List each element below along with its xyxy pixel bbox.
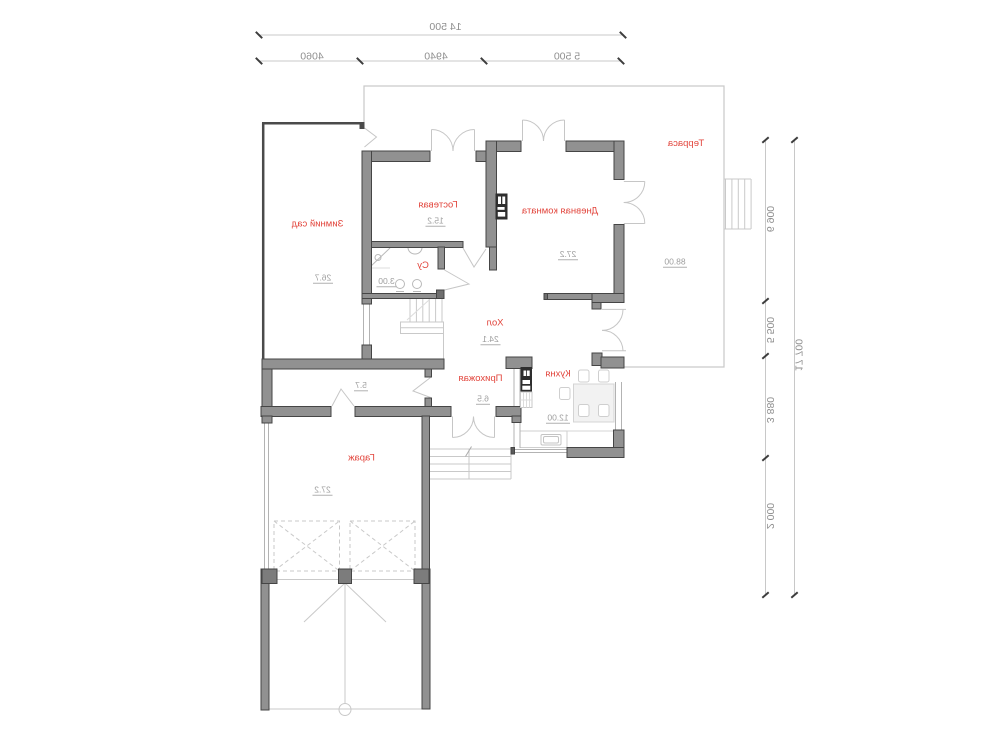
svg-text:Хол: Хол — [487, 318, 504, 329]
svg-text:Гараж: Гараж — [347, 453, 374, 464]
svg-text:2 000: 2 000 — [764, 503, 776, 529]
svg-text:Зимний сад: Зимний сад — [291, 219, 343, 230]
svg-text:24.1: 24.1 — [482, 334, 499, 344]
svg-text:Терраса: Терраса — [667, 138, 704, 149]
svg-text:4060: 4060 — [300, 51, 324, 63]
svg-text:Су: Су — [417, 260, 429, 271]
svg-text:5 500: 5 500 — [764, 317, 776, 343]
svg-text:17 700: 17 700 — [793, 339, 805, 371]
svg-text:Дневная комната: Дневная комната — [521, 206, 598, 217]
svg-text:5.7: 5.7 — [355, 380, 367, 390]
svg-text:4940: 4940 — [424, 51, 448, 63]
svg-text:3 880: 3 880 — [764, 397, 776, 423]
svg-text:26.7: 26.7 — [314, 273, 331, 283]
svg-text:Гостевая: Гостевая — [418, 200, 457, 211]
svg-text:27.2: 27.2 — [314, 485, 331, 495]
svg-text:6 900: 6 900 — [764, 206, 776, 232]
svg-text:12.00: 12.00 — [547, 413, 569, 423]
svg-text:14 500: 14 500 — [429, 21, 461, 33]
svg-text:3.00: 3.00 — [378, 276, 395, 286]
svg-text:Прихожая: Прихожая — [458, 373, 502, 384]
svg-text:27.2: 27.2 — [559, 249, 576, 259]
svg-text:6.5: 6.5 — [477, 394, 489, 404]
svg-text:5 500: 5 500 — [554, 51, 580, 63]
svg-text:Кухня: Кухня — [545, 369, 570, 380]
svg-text:15.2: 15.2 — [427, 216, 444, 226]
svg-text:88.00: 88.00 — [664, 257, 686, 267]
